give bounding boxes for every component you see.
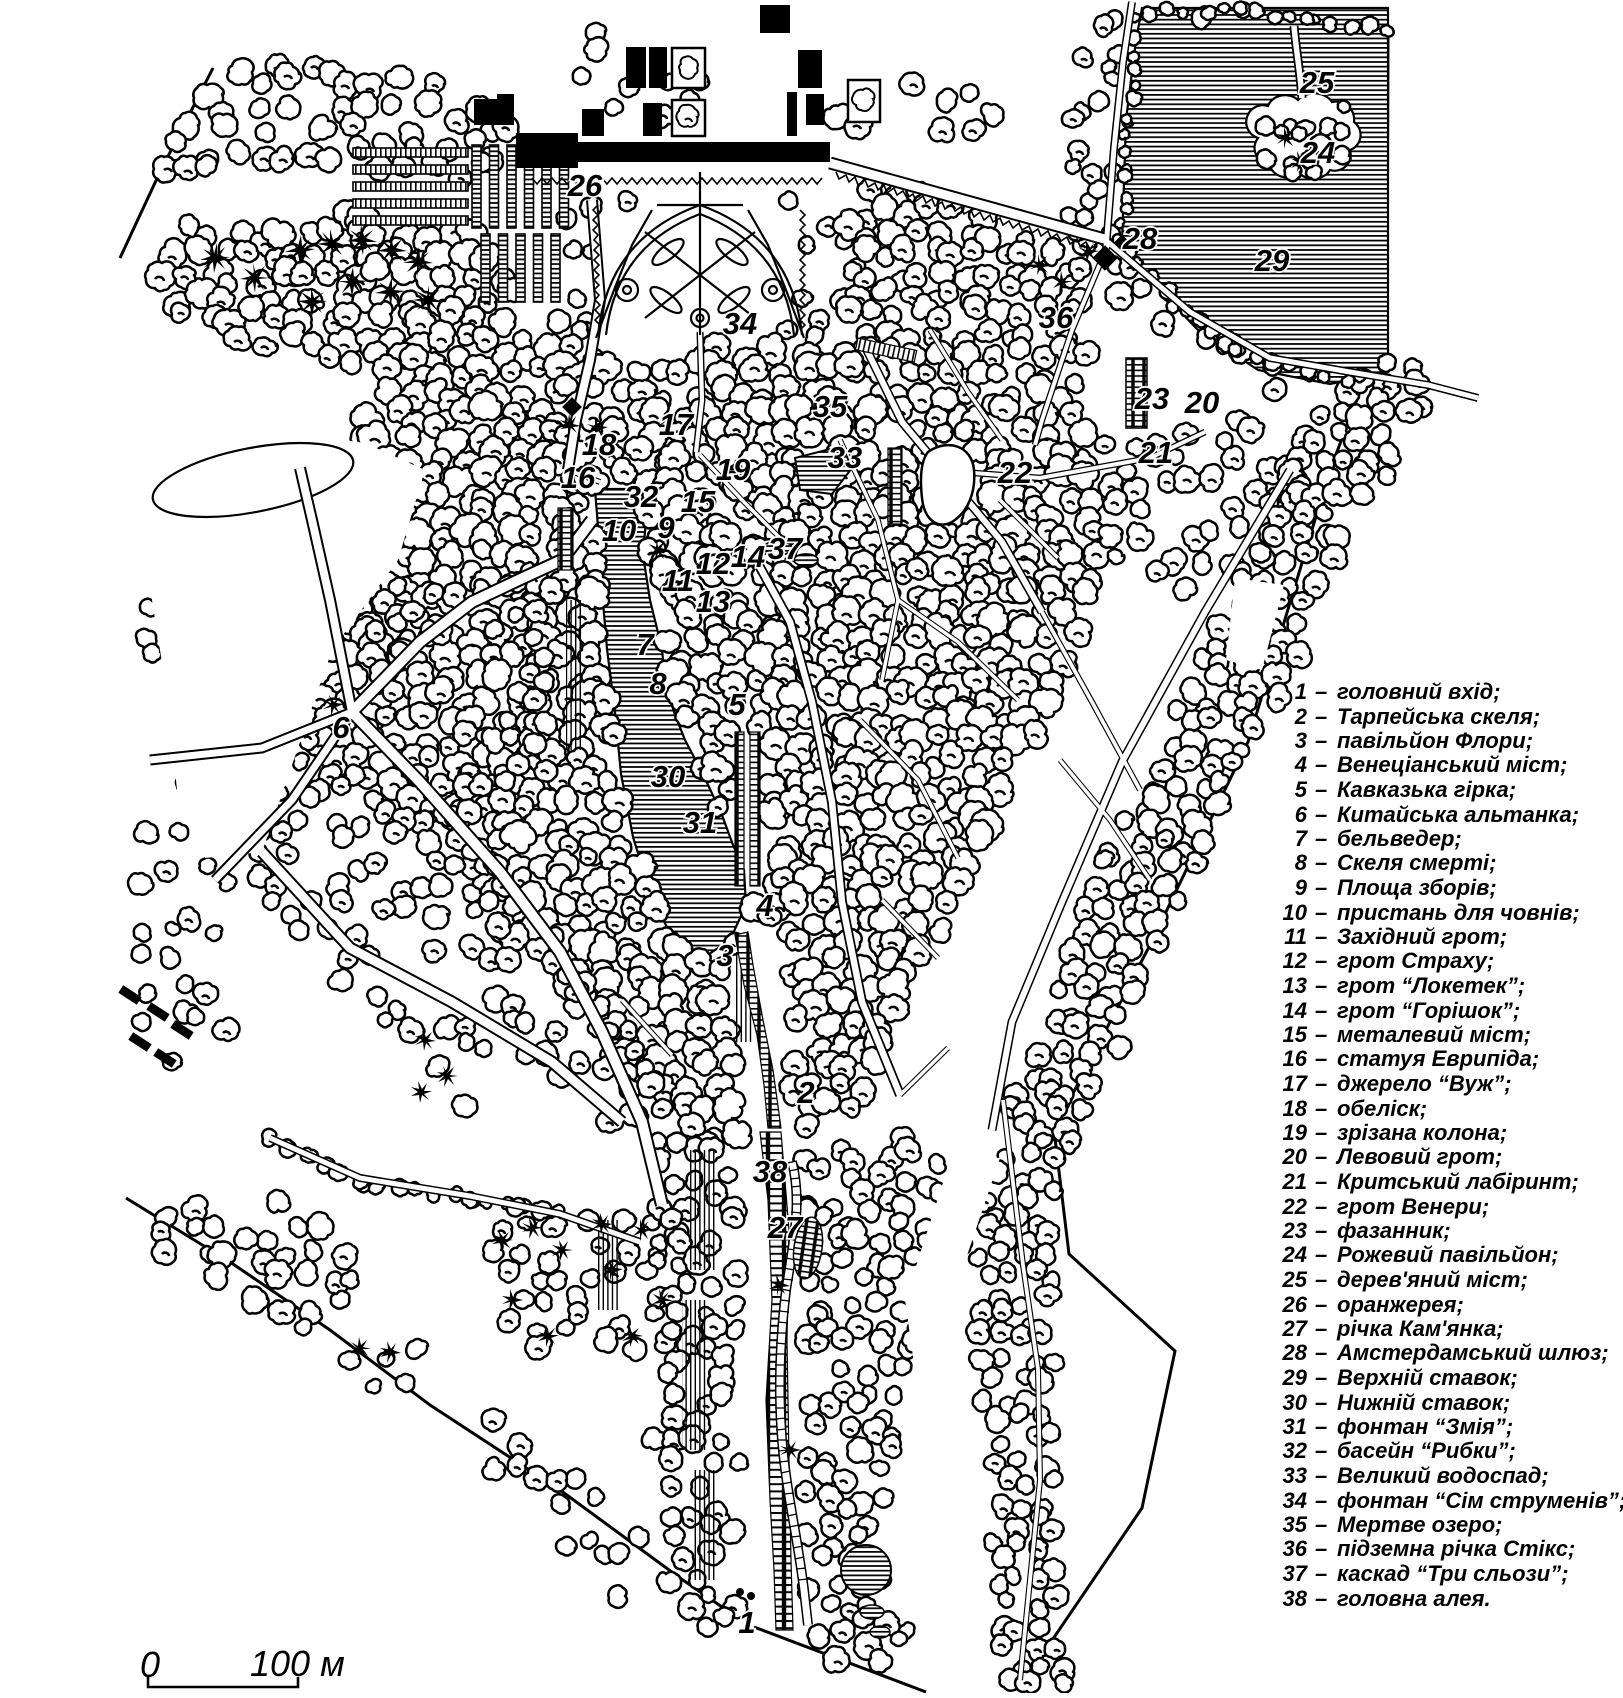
svg-text:Тарпейська скеля;: Тарпейська скеля; [1337, 704, 1540, 729]
svg-text:–: – [1315, 1414, 1327, 1439]
svg-text:11: 11 [1284, 924, 1307, 949]
svg-text:–: – [1315, 1390, 1327, 1415]
svg-text:8: 8 [1295, 850, 1308, 875]
svg-text:23: 23 [1134, 381, 1169, 416]
svg-text:22: 22 [997, 455, 1032, 490]
svg-text:–: – [1315, 924, 1327, 949]
svg-text:5: 5 [728, 687, 746, 722]
svg-text:–: – [1315, 1365, 1327, 1390]
svg-text:19: 19 [1283, 1120, 1308, 1145]
svg-text:–: – [1315, 1340, 1327, 1365]
svg-text:–: – [1315, 1561, 1327, 1586]
svg-text:6: 6 [1295, 802, 1308, 827]
svg-text:23: 23 [1282, 1218, 1307, 1243]
svg-text:–: – [1315, 826, 1327, 851]
svg-text:–: – [1315, 850, 1327, 875]
svg-text:Західний грот;: Західний грот; [1337, 924, 1507, 949]
svg-text:–: – [1315, 1586, 1327, 1611]
svg-text:31: 31 [1283, 1414, 1307, 1439]
svg-text:фазанник;: фазанник; [1337, 1218, 1451, 1243]
svg-text:Критський лабіринт;: Критський лабіринт; [1337, 1169, 1579, 1194]
svg-text:30: 30 [651, 759, 685, 794]
svg-text:–: – [1315, 1096, 1327, 1121]
svg-text:25: 25 [1299, 65, 1335, 100]
svg-text:–: – [1315, 998, 1327, 1023]
svg-text:–: – [1315, 1463, 1327, 1488]
svg-text:–: – [1315, 1267, 1327, 1292]
svg-text:15: 15 [681, 484, 716, 519]
svg-text:2: 2 [796, 1075, 814, 1110]
svg-text:джерело “Вуж”;: джерело “Вуж”; [1337, 1071, 1512, 1096]
svg-text:–: – [1315, 973, 1327, 998]
svg-text:оранжерея;: оранжерея; [1337, 1292, 1464, 1317]
svg-text:головний вхід;: головний вхід; [1337, 679, 1501, 704]
svg-text:Верхній ставок;: Верхній ставок; [1337, 1365, 1518, 1390]
svg-text:31: 31 [683, 805, 717, 840]
svg-text:–: – [1315, 1071, 1327, 1096]
svg-text:24: 24 [1300, 135, 1335, 170]
svg-text:28: 28 [1282, 1340, 1308, 1365]
svg-text:36: 36 [1283, 1536, 1308, 1561]
svg-text:статуя Еврипіда;: статуя Еврипіда; [1337, 1046, 1539, 1071]
svg-text:22: 22 [1282, 1194, 1308, 1219]
svg-text:6: 6 [332, 710, 350, 745]
svg-text:2: 2 [1294, 704, 1308, 729]
svg-text:12: 12 [1283, 948, 1308, 973]
svg-text:18: 18 [582, 427, 617, 462]
svg-text:головна алея.: головна алея. [1337, 1586, 1491, 1611]
svg-text:33: 33 [1283, 1463, 1307, 1488]
svg-text:–: – [1315, 1242, 1327, 1267]
svg-text:1: 1 [1295, 679, 1307, 704]
svg-text:каскад “Три сльози”;: каскад “Три сльози”; [1337, 1561, 1569, 1586]
svg-text:грот Страху;: грот Страху; [1337, 948, 1494, 973]
svg-text:бельведер;: бельведер; [1337, 826, 1462, 851]
svg-text:–: – [1315, 802, 1327, 827]
svg-text:32: 32 [624, 479, 658, 514]
svg-text:38: 38 [753, 1154, 788, 1189]
svg-text:29: 29 [1282, 1365, 1308, 1390]
svg-text:1: 1 [738, 1605, 755, 1640]
svg-text:металевий міст;: металевий міст; [1337, 1022, 1531, 1047]
svg-text:35: 35 [1283, 1512, 1308, 1537]
svg-text:–: – [1315, 948, 1327, 973]
svg-text:33: 33 [828, 440, 862, 475]
svg-text:4: 4 [755, 888, 773, 923]
svg-text:34: 34 [723, 306, 757, 341]
svg-text:3: 3 [716, 938, 733, 973]
svg-text:Венеціанський міст;: Венеціанський міст; [1337, 752, 1567, 777]
svg-text:–: – [1315, 1120, 1327, 1145]
svg-text:Рожевий павільйон;: Рожевий павільйон; [1337, 1242, 1559, 1267]
svg-text:12: 12 [696, 546, 730, 581]
svg-text:32: 32 [1283, 1438, 1308, 1463]
svg-text:21: 21 [1138, 435, 1173, 470]
svg-text:–: – [1315, 1438, 1327, 1463]
svg-text:18: 18 [1283, 1096, 1308, 1121]
svg-text:–: – [1315, 1512, 1327, 1537]
svg-text:34: 34 [1283, 1488, 1307, 1513]
svg-text:Площа зборів;: Площа зборів; [1337, 875, 1497, 900]
svg-text:–: – [1315, 752, 1327, 777]
svg-text:зрізана колона;: зрізана колона; [1337, 1120, 1507, 1145]
svg-text:–: – [1315, 1144, 1327, 1169]
svg-text:Левовий грот;: Левовий грот; [1335, 1144, 1502, 1169]
svg-text:30: 30 [1283, 1390, 1308, 1415]
svg-text:грот “Локетек”;: грот “Локетек”; [1337, 973, 1525, 998]
svg-text:38: 38 [1283, 1586, 1308, 1611]
svg-text:фонтан “Змія”;: фонтан “Змія”; [1337, 1414, 1513, 1439]
svg-text:13: 13 [696, 584, 730, 619]
svg-text:14: 14 [731, 539, 765, 574]
svg-text:37: 37 [768, 531, 804, 566]
svg-text:17: 17 [659, 407, 695, 442]
svg-text:7: 7 [1295, 826, 1309, 851]
svg-text:–: – [1315, 704, 1327, 729]
svg-text:11: 11 [662, 563, 694, 598]
svg-text:підземна річка Стікс;: підземна річка Стікс; [1337, 1536, 1575, 1561]
svg-text:25: 25 [1282, 1267, 1308, 1292]
svg-text:грот Венери;: грот Венери; [1337, 1194, 1489, 1219]
svg-text:–: – [1315, 1218, 1327, 1243]
svg-text:3: 3 [1295, 728, 1307, 753]
svg-text:Мертве озеро;: Мертве озеро; [1337, 1512, 1502, 1537]
svg-text:17: 17 [1283, 1071, 1309, 1096]
svg-text:обеліск;: обеліск; [1337, 1096, 1427, 1121]
svg-text:басейн “Рибки”;: басейн “Рибки”; [1337, 1438, 1516, 1463]
svg-text:Китайська альтанка;: Китайська альтанка; [1337, 802, 1579, 827]
svg-text:10: 10 [1283, 900, 1308, 925]
svg-text:7: 7 [636, 627, 655, 662]
svg-text:річка Кам'янка;: річка Кам'янка; [1336, 1316, 1504, 1341]
svg-text:пристань для човнів;: пристань для човнів; [1337, 900, 1580, 925]
svg-text:дерев'яний міст;: дерев'яний міст; [1337, 1267, 1528, 1292]
svg-text:20: 20 [1184, 385, 1219, 420]
svg-text:14: 14 [1283, 998, 1307, 1023]
svg-text:Великий водоспад;: Великий водоспад; [1337, 1463, 1549, 1488]
svg-text:21: 21 [1282, 1169, 1307, 1194]
svg-text:36: 36 [1039, 300, 1074, 335]
svg-text:Амстердамський шлюз;: Амстердамський шлюз; [1336, 1340, 1609, 1365]
svg-text:5: 5 [1295, 777, 1308, 802]
svg-text:26: 26 [1282, 1292, 1308, 1317]
svg-text:Нижній ставок;: Нижній ставок; [1337, 1390, 1510, 1415]
svg-text:грот “Горішок”;: грот “Горішок”; [1337, 998, 1520, 1023]
svg-text:37: 37 [1283, 1561, 1309, 1586]
svg-text:26: 26 [567, 168, 603, 203]
svg-text:–: – [1315, 1022, 1327, 1047]
svg-text:павільйон Флори;: павільйон Флори; [1337, 728, 1533, 753]
svg-text:–: – [1315, 1536, 1327, 1561]
svg-text:Скеля смерті;: Скеля смерті; [1337, 850, 1496, 875]
svg-text:4: 4 [1294, 752, 1307, 777]
svg-text:–: – [1315, 1194, 1327, 1219]
svg-text:–: – [1315, 679, 1327, 704]
svg-text:28: 28 [1122, 221, 1158, 256]
svg-text:27: 27 [767, 1210, 804, 1245]
svg-text:19: 19 [716, 452, 751, 487]
svg-text:9: 9 [1295, 875, 1308, 900]
svg-text:–: – [1315, 728, 1327, 753]
svg-text:24: 24 [1282, 1242, 1307, 1267]
svg-text:20: 20 [1282, 1144, 1308, 1169]
svg-text:–: – [1315, 1488, 1327, 1513]
svg-text:9: 9 [657, 510, 675, 545]
svg-text:–: – [1315, 777, 1327, 802]
svg-text:–: – [1315, 875, 1327, 900]
svg-text:–: – [1315, 1046, 1327, 1071]
svg-text:13: 13 [1283, 973, 1307, 998]
svg-text:–: – [1315, 1292, 1327, 1317]
svg-text:0: 0 [140, 1644, 160, 1685]
svg-text:Кавказька гірка;: Кавказька гірка; [1337, 777, 1516, 802]
svg-text:8: 8 [649, 666, 667, 701]
svg-text:–: – [1315, 1169, 1327, 1194]
svg-text:27: 27 [1282, 1316, 1309, 1341]
svg-text:16: 16 [561, 460, 596, 495]
svg-text:29: 29 [1254, 243, 1290, 278]
svg-text:10: 10 [602, 513, 636, 548]
svg-text:35: 35 [813, 389, 848, 424]
svg-text:16: 16 [1283, 1046, 1308, 1071]
svg-text:–: – [1315, 1316, 1327, 1341]
svg-text:–: – [1315, 900, 1327, 925]
svg-text:15: 15 [1283, 1022, 1308, 1047]
svg-text:фонтан “Сім струменів”;: фонтан “Сім струменів”; [1337, 1488, 1623, 1513]
